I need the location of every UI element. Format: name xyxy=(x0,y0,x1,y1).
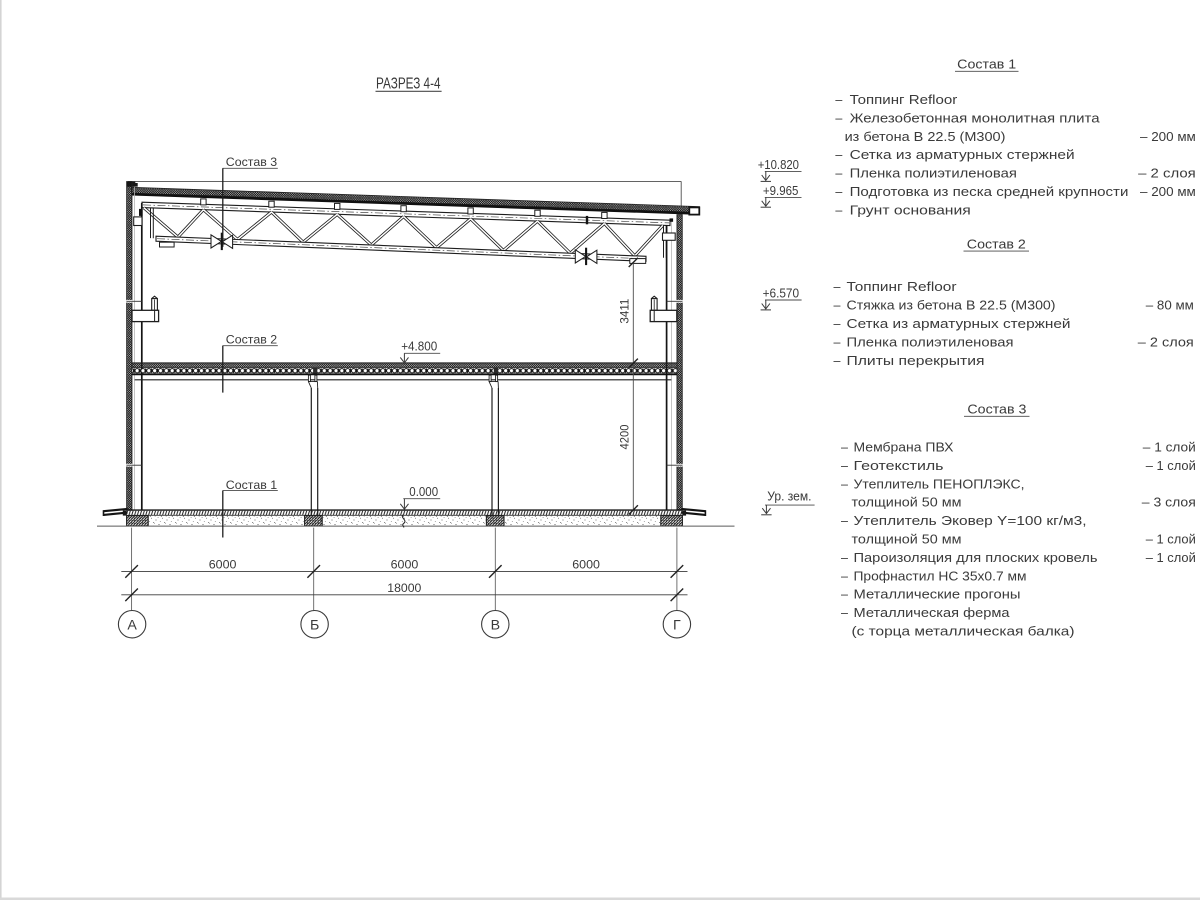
svg-text:– 1 слой: – 1 слой xyxy=(1143,441,1196,455)
svg-text:–: – xyxy=(834,336,841,350)
svg-text:–: – xyxy=(835,185,842,199)
svg-text:Плиты перекрытия: Плиты перекрытия xyxy=(847,354,985,368)
svg-text:+4.800: +4.800 xyxy=(401,340,437,354)
svg-text:–: – xyxy=(841,551,848,565)
svg-text:–: – xyxy=(835,203,842,217)
svg-text:4200: 4200 xyxy=(619,425,631,450)
svg-text:– 80 мм: – 80 мм xyxy=(1146,299,1194,313)
svg-text:18000: 18000 xyxy=(387,581,421,595)
svg-text:–: – xyxy=(841,606,848,620)
svg-text:Подготовка из песка средней кр: Подготовка из песка средней крупности xyxy=(850,185,1129,199)
svg-text:Утеплитель ПЕНОПЛЭКС,: Утеплитель ПЕНОПЛЭКС, xyxy=(854,477,1025,491)
svg-text:Ур. зем.: Ур. зем. xyxy=(767,490,811,504)
svg-text:–: – xyxy=(834,299,841,313)
svg-text:6000: 6000 xyxy=(391,558,419,572)
svg-text:–: – xyxy=(835,93,842,107)
svg-text:–: – xyxy=(841,459,848,473)
svg-text:– 2 слоя: – 2 слоя xyxy=(1138,167,1196,181)
svg-text:Топпинг Refloor: Топпинг Refloor xyxy=(850,93,958,107)
svg-text:Пароизоляция для плоских крове: Пароизоляция для плоских кровель xyxy=(854,551,1098,565)
svg-text:А: А xyxy=(127,617,137,633)
svg-text:толщиной 50 мм: толщиной 50 мм xyxy=(852,496,962,510)
svg-text:Профнастил НС 35х0.7 мм: Профнастил НС 35х0.7 мм xyxy=(854,569,1027,583)
svg-text:Б: Б xyxy=(310,617,319,633)
svg-text:Топпинг Refloor: Топпинг Refloor xyxy=(847,280,957,294)
svg-text:–: – xyxy=(834,280,841,294)
svg-text:– 200 мм: – 200 мм xyxy=(1140,185,1196,199)
svg-text:0.000: 0.000 xyxy=(409,485,438,499)
svg-text:– 1 слой: – 1 слой xyxy=(1146,459,1196,473)
svg-text:Состав 1: Состав 1 xyxy=(957,57,1016,72)
svg-text:–: – xyxy=(834,354,841,368)
svg-text:– 200 мм: – 200 мм xyxy=(1140,130,1196,144)
svg-text:– 3 слоя: – 3 слоя xyxy=(1142,496,1196,510)
svg-text:Состав 3: Состав 3 xyxy=(226,155,277,169)
svg-text:Состав 3: Состав 3 xyxy=(967,402,1026,417)
svg-text:Железобетонная монолитная пли: Железобетонная монолитная плита xyxy=(850,111,1100,125)
svg-text:из бетона В 22.5 (М300): из бетона В 22.5 (М300) xyxy=(845,130,1006,144)
svg-text:Г: Г xyxy=(673,617,681,633)
svg-text:–: – xyxy=(841,514,848,528)
svg-text:В: В xyxy=(491,617,500,633)
svg-text:Пленка полиэтиленовая: Пленка полиэтиленовая xyxy=(847,336,1014,350)
svg-text:Металлическая ферма: Металлическая ферма xyxy=(854,606,1010,620)
svg-text:+9.965: +9.965 xyxy=(763,184,799,198)
svg-text:+6.570: +6.570 xyxy=(763,287,800,301)
svg-text:– 1 слой: – 1 слой xyxy=(1146,551,1196,565)
svg-text:+10.820: +10.820 xyxy=(758,158,799,172)
svg-text:–: – xyxy=(841,588,848,602)
svg-text:Состав 1: Состав 1 xyxy=(226,478,277,492)
svg-text:РАЗРЕЗ 4-4: РАЗРЕЗ 4-4 xyxy=(376,75,441,92)
svg-text:Состав 2: Состав 2 xyxy=(226,333,277,347)
svg-text:Пленка полиэтиленовая: Пленка полиэтиленовая xyxy=(850,167,1017,181)
svg-text:Утеплитель Эковер Y=100 кг/м3,: Утеплитель Эковер Y=100 кг/м3, xyxy=(854,514,1087,528)
svg-text:–: – xyxy=(835,148,842,162)
svg-text:Грунт основания: Грунт основания xyxy=(850,203,971,217)
svg-text:Сетка из арматурных стержней: Сетка из арматурных стержней xyxy=(847,317,1071,331)
svg-text:Сетка из арматурных стержней: Сетка из арматурных стержней xyxy=(850,148,1075,162)
svg-text:Стяжка из бетона В 22.5 (М300): Стяжка из бетона В 22.5 (М300) xyxy=(847,299,1056,313)
svg-text:толщиной 50 мм: толщиной 50 мм xyxy=(852,533,962,547)
svg-text:–: – xyxy=(835,111,842,125)
svg-text:–: – xyxy=(834,317,841,331)
svg-text:3411: 3411 xyxy=(619,299,631,324)
svg-text:6000: 6000 xyxy=(209,558,237,572)
svg-text:–: – xyxy=(841,477,848,491)
svg-text:Металлические прогоны: Металлические прогоны xyxy=(854,588,1021,602)
svg-text:– 1 слой: – 1 слой xyxy=(1146,533,1196,547)
svg-text:–: – xyxy=(835,167,842,181)
svg-text:Мембрана ПВХ: Мембрана ПВХ xyxy=(854,441,955,455)
svg-text:6000: 6000 xyxy=(572,558,600,572)
svg-text:(с торца металлическая балка): (с торца металлическая балка) xyxy=(852,625,1075,639)
svg-text:Геотекстиль: Геотекстиль xyxy=(854,459,944,473)
svg-text:–: – xyxy=(841,569,848,583)
svg-text:–: – xyxy=(841,441,848,455)
svg-text:Состав 2: Состав 2 xyxy=(967,236,1026,251)
svg-text:– 2 слоя: – 2 слоя xyxy=(1138,336,1194,350)
